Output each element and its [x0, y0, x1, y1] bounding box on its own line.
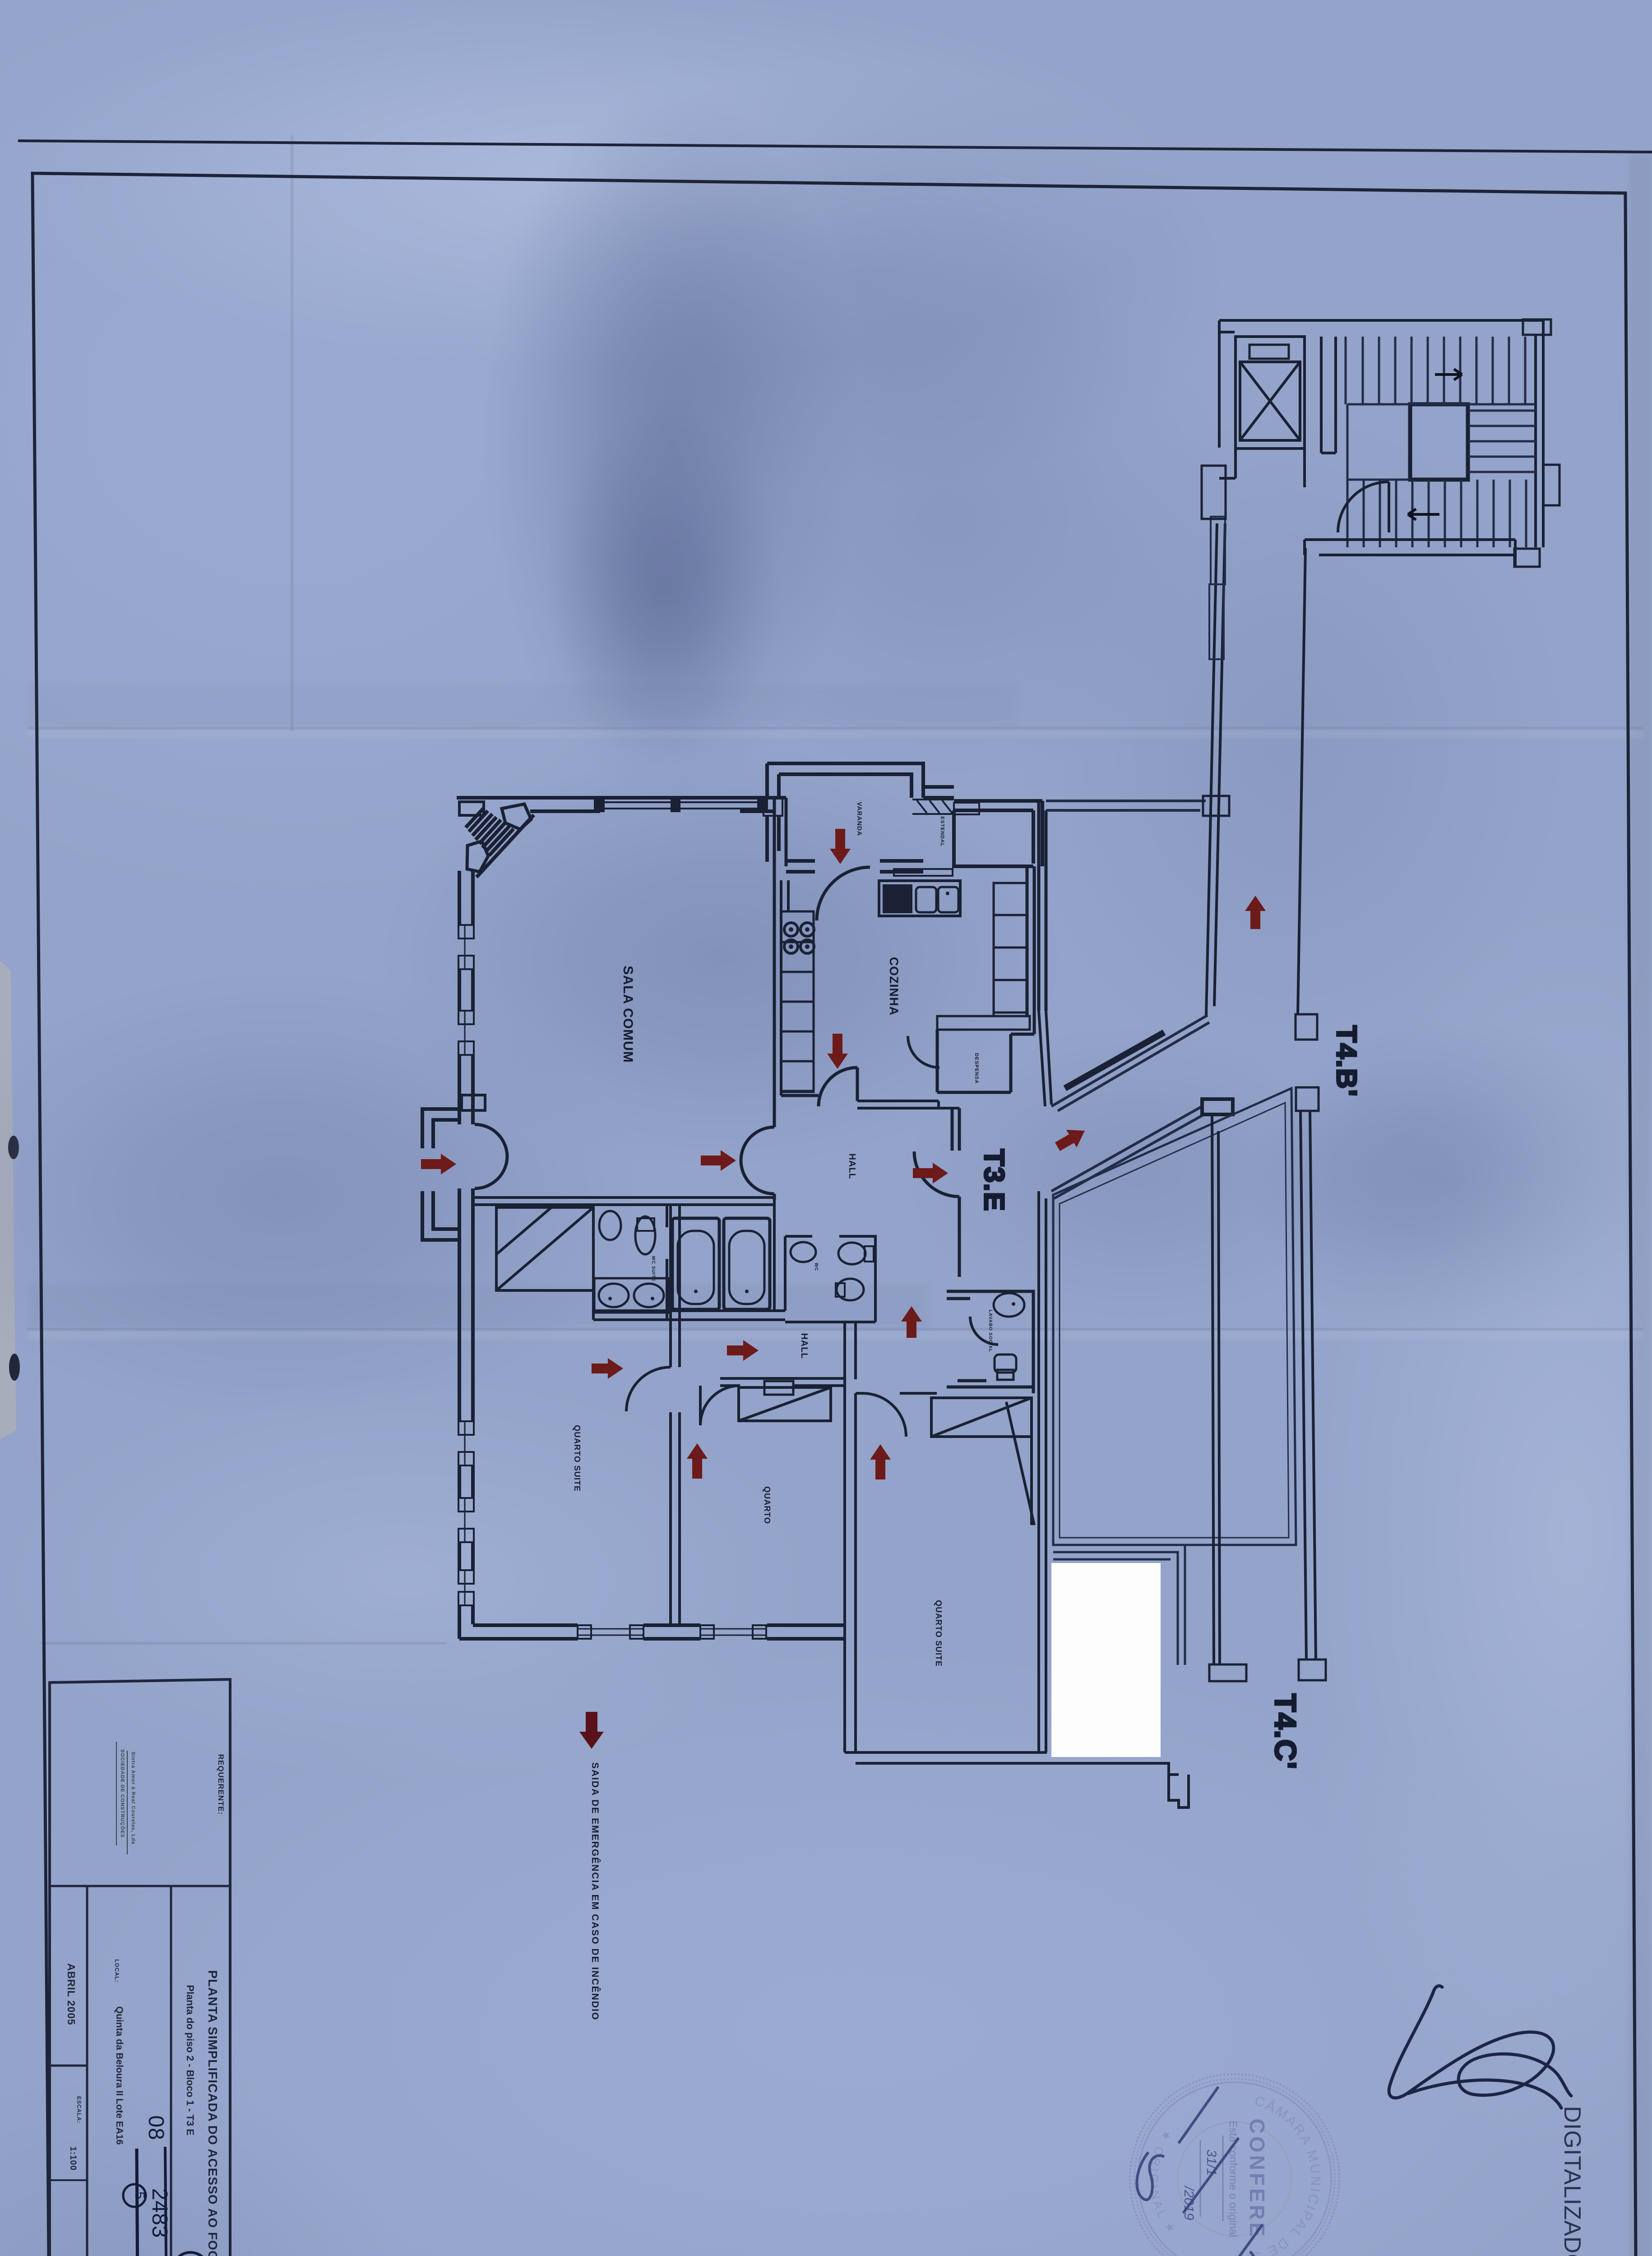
svg-text:QUARTO SUITE: QUARTO SUITE: [573, 1425, 582, 1492]
svg-text:ESTENDAL: ESTENDAL: [939, 816, 945, 846]
svg-text:Quinta da Beloura II Lote EA: Quinta da Beloura II Lote EA16: [114, 2006, 125, 2145]
svg-text:WC SUITE: WC SUITE: [651, 1256, 656, 1282]
svg-text:T3.E: T3.E: [978, 1149, 1009, 1212]
svg-text:1:100: 1:100: [68, 2146, 78, 2171]
svg-text:DESPENSA: DESPENSA: [974, 1053, 979, 1084]
svg-text:T4.C': T4.C': [1269, 1694, 1302, 1770]
svg-text:ABRIL 2005: ABRIL 2005: [65, 1963, 77, 2025]
svg-text:5: 5: [132, 2191, 147, 2200]
svg-text:ESCALA:: ESCALA:: [76, 2096, 82, 2123]
svg-text:REQUERENTE:: REQUERENTE:: [217, 1754, 225, 1815]
svg-text:QUARTO: QUARTO: [763, 1486, 772, 1524]
svg-text:LAVABO SOCIAL: LAVABO SOCIAL: [988, 1310, 993, 1352]
svg-text:SOCIEDADE DE CONSTRUÇÕES: SOCIEDADE DE CONSTRUÇÕES: [120, 1749, 125, 1838]
svg-text:Sintra Amor à Real Courelas, L: Sintra Amor à Real Courelas, Lda: [130, 1752, 136, 1845]
svg-text:HALL: HALL: [799, 1333, 809, 1359]
svg-text:PLANTA SIMPLIFICADA DO ACESSO: PLANTA SIMPLIFICADA DO ACESSO AO FOGO: [206, 1970, 220, 2256]
svg-text:QUARTO SUITE: QUARTO SUITE: [934, 1600, 943, 1667]
svg-text:Planta do piso 2 - Bloco 1 - T: Planta do piso 2 - Bloco 1 - T3 E: [185, 1985, 196, 2136]
svg-text:COZINHA: COZINHA: [887, 957, 901, 1016]
svg-text:DIGITALIZADO: DIGITALIZADO: [1559, 2106, 1585, 2256]
svg-text:SALA COMUM: SALA COMUM: [620, 966, 635, 1063]
svg-text:WC: WC: [814, 1263, 819, 1271]
svg-text:CONFERE: CONFERE: [1245, 2119, 1269, 2239]
svg-text:/2019: /2019: [1181, 2185, 1196, 2220]
svg-text:31/1: 31/1: [1204, 2150, 1219, 2176]
svg-text:SAIDA DE EMERGÊNCIA EM CASO DE: SAIDA DE EMERGÊNCIA EM CASO DE INCÊNDIO: [590, 1762, 601, 2020]
svg-text:LOCAL:: LOCAL:: [114, 1959, 120, 1982]
svg-text:T4.B': T4.B': [1331, 1025, 1362, 1097]
svg-text:VARANDA: VARANDA: [856, 802, 863, 836]
svg-text:08: 08: [144, 2115, 168, 2140]
svg-text:HALL: HALL: [847, 1153, 857, 1179]
svg-text:2483: 2483: [148, 2188, 171, 2238]
